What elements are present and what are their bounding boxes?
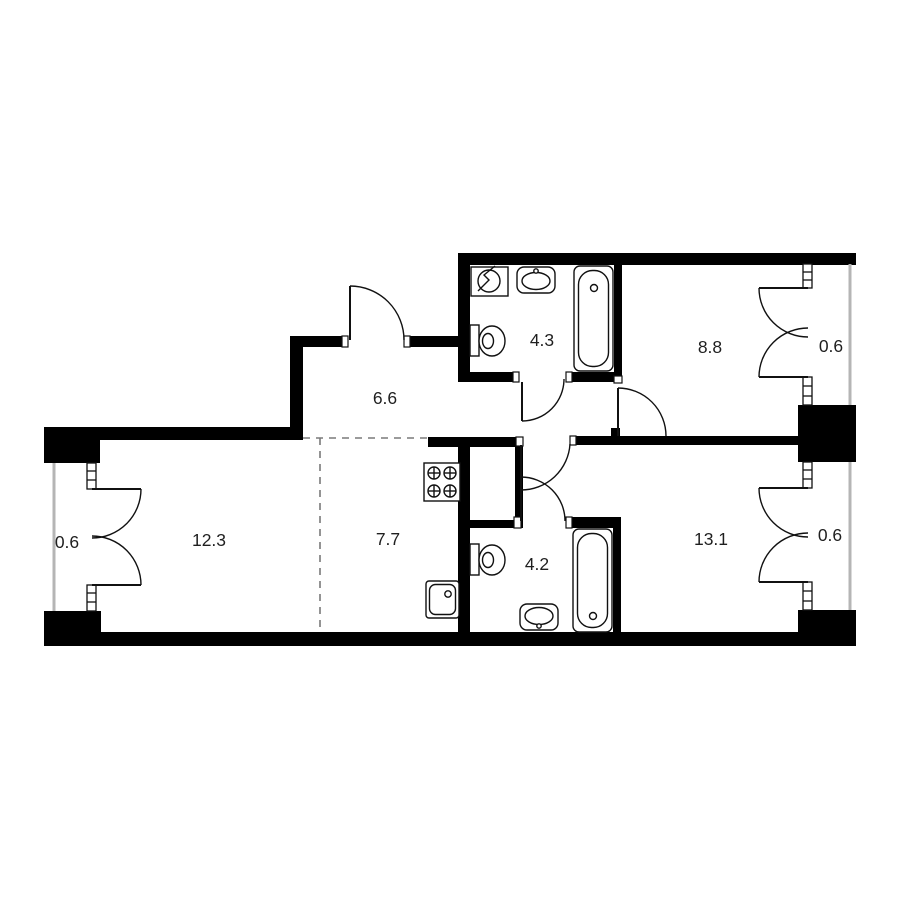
bathroom-lower-door xyxy=(521,477,565,521)
pier-top-left xyxy=(44,427,100,463)
window-upper-right-a xyxy=(803,264,812,288)
stove-burner xyxy=(428,467,440,479)
washbasin-lower xyxy=(520,604,558,630)
bathtub-upper xyxy=(574,266,613,371)
pier-bottom-left xyxy=(44,611,101,646)
jamb xyxy=(614,376,622,383)
stove xyxy=(424,463,460,501)
window-lower-right-b xyxy=(803,582,812,610)
stove-burner xyxy=(444,485,456,497)
wall-top xyxy=(458,253,856,265)
window-upper-right-b xyxy=(803,377,812,405)
pier-middle-right xyxy=(798,405,856,462)
room-label-balcony-upper-right: 0.6 xyxy=(819,336,843,356)
room-label-room-lower: 13.1 xyxy=(694,529,728,549)
floor-plan: 6.6 4.3 8.8 0.6 0.6 12.3 7.7 4.2 13.1 0.… xyxy=(0,0,900,900)
balcony-upper-right-french-doors xyxy=(759,288,808,377)
wall-bottom xyxy=(100,632,798,646)
bathroom-upper-door xyxy=(522,379,564,421)
jamb xyxy=(516,437,523,446)
balcony-left-french-doors xyxy=(92,489,141,585)
room-label-kitchen: 7.7 xyxy=(376,529,400,549)
balcony-lower-right-french-doors xyxy=(759,488,808,582)
bathtub-lower xyxy=(573,529,612,632)
window-lower-right-a xyxy=(803,462,812,488)
wall-corridor-south xyxy=(570,436,798,445)
open-plan-boundaries xyxy=(303,438,428,632)
wall-bath-upper-left xyxy=(458,264,470,382)
room-label-room-upper: 8.8 xyxy=(698,337,722,357)
entrance-door xyxy=(350,286,404,340)
room-label-hallway: 6.6 xyxy=(373,388,397,408)
room-label-balcony-left: 0.6 xyxy=(55,532,79,552)
wall-bath-lower-top-b xyxy=(566,517,621,528)
wall-bath-lower-right xyxy=(613,517,621,633)
stove-burner xyxy=(444,467,456,479)
wall-entrance-right xyxy=(404,336,460,347)
jamb xyxy=(514,517,521,528)
room-lower-door xyxy=(521,444,570,490)
jamb xyxy=(566,372,572,382)
jamb xyxy=(404,336,410,347)
jamb xyxy=(342,336,348,347)
wall-bath-upper-bottom-a xyxy=(458,372,519,382)
room-upper-door xyxy=(618,388,666,436)
ventilation-fan-icon xyxy=(471,266,508,296)
window-left-upper xyxy=(87,463,96,489)
kitchen-sink xyxy=(426,581,459,618)
jamb xyxy=(566,517,572,528)
pier-bottom-right xyxy=(798,610,856,646)
wall-divider-bath-room xyxy=(614,264,622,383)
floor-plan-page: 6.6 4.3 8.8 0.6 0.6 12.3 7.7 4.2 13.1 0.… xyxy=(0,0,900,900)
toilet-upper xyxy=(470,325,505,356)
washbasin-upper xyxy=(517,267,555,293)
jamb xyxy=(570,436,576,445)
shaft-interior xyxy=(470,447,515,520)
room-label-bathroom-upper: 4.3 xyxy=(530,330,554,350)
room-label-balcony-lower-right: 0.6 xyxy=(818,525,842,545)
room-labels: 6.6 4.3 8.8 0.6 0.6 12.3 7.7 4.2 13.1 0.… xyxy=(55,330,843,574)
stove-burner xyxy=(428,485,440,497)
toilet-lower xyxy=(470,544,505,575)
wall-hall-left xyxy=(290,336,303,440)
room-label-bathroom-lower: 4.2 xyxy=(525,554,549,574)
room-label-living-room: 12.3 xyxy=(192,530,226,550)
jamb xyxy=(513,372,519,382)
window-left-lower xyxy=(87,585,96,611)
